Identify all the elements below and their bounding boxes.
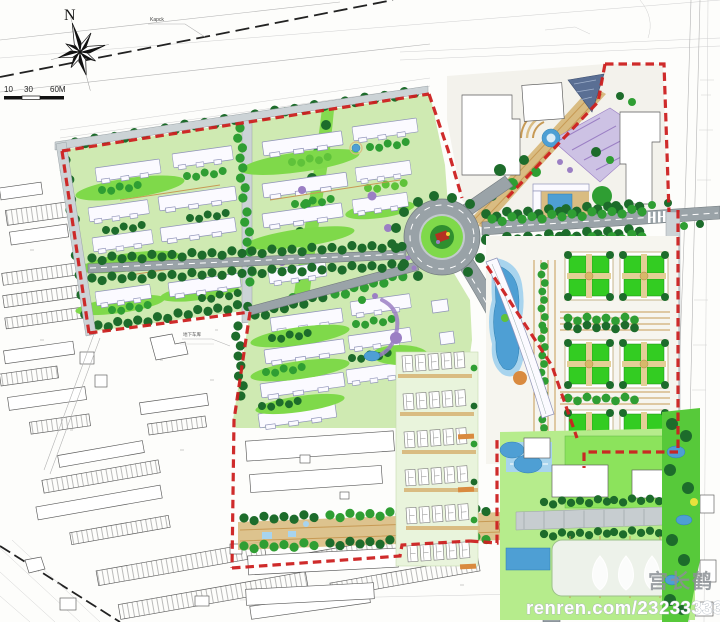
masterplan-drawing: Kapck [0,0,720,622]
annotation-garage: 地下车库 [180,331,230,346]
townhouse-cluster [396,352,480,570]
scale-bar: 10 30 60M [4,85,66,100]
masterplan-canvas: Kapck [0,0,720,622]
north-label: N [64,7,76,24]
survey-road-label: Kapck [150,17,164,23]
scale-tick-60m: 60M [50,85,66,94]
garage-note-label: 地下车库 [183,331,201,338]
watermark-artist: 宫长鹤 [648,569,714,593]
scale-tick-30: 30 [24,85,33,94]
watermark-site-text: renren.com/2323333316 [526,597,720,618]
scale-tick-10: 10 [4,85,13,94]
